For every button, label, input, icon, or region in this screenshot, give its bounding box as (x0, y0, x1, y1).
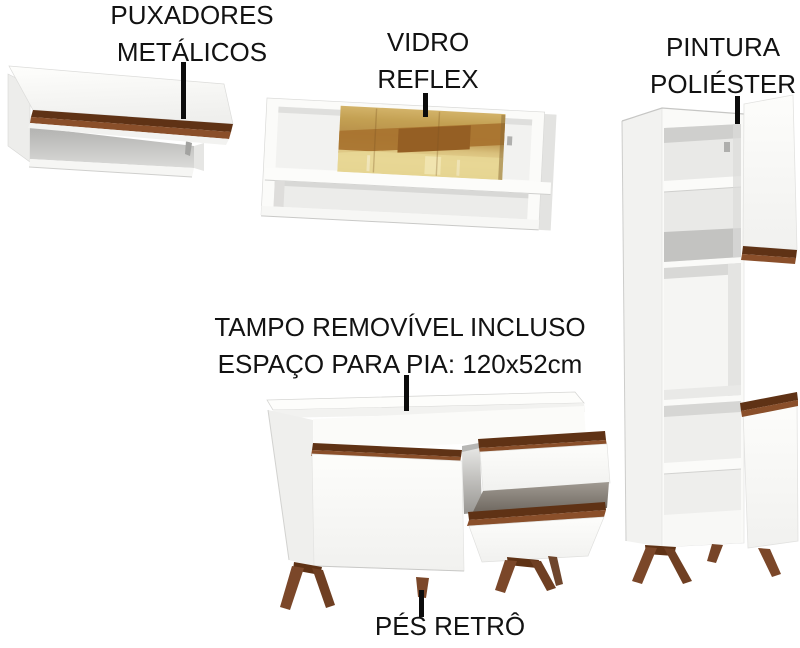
tall-cabinet-upper-door (741, 95, 797, 264)
label-retro-feet: PÉS RETRÔ (340, 608, 560, 645)
wall-cabinet-glass (261, 98, 557, 231)
label-line: REFLEX (328, 61, 528, 98)
label-metal-handles: PUXADORES METÁLICOS (57, 0, 327, 71)
label-line: ESPAÇO PARA PIA: 120x52cm (175, 346, 625, 383)
counter-cabinet (267, 392, 610, 610)
label-line: METÁLICOS (57, 34, 327, 71)
label-line: PUXADORES (57, 0, 327, 34)
reflex-glass-panel (337, 106, 505, 180)
glass-door-hinge (507, 136, 512, 145)
retro-feet-tall-cabinet (632, 544, 781, 584)
label-polyester-paint: PINTURA POLIÉSTER (633, 29, 800, 103)
counter-open-drawer (478, 431, 610, 491)
label-line: PÉS RETRÔ (340, 608, 560, 645)
counter-tilted-drawer (467, 502, 606, 562)
tall-cabinet-lower-door (740, 392, 798, 548)
label-line: TAMPO REMOVÍVEL INCLUSO (175, 309, 625, 346)
counter-left-door (312, 454, 464, 571)
label-reflex-glass: VIDRO REFLEX (328, 24, 528, 98)
label-line: VIDRO (328, 24, 528, 61)
wall-cabinet-flip-door (8, 66, 233, 177)
label-line: PINTURA (633, 29, 800, 66)
label-countertop-sink: TAMPO REMOVÍVEL INCLUSO ESPAÇO PARA PIA:… (175, 309, 625, 383)
shelf-hinge (724, 142, 730, 152)
product-feature-diagram: PUXADORES METÁLICOS VIDRO REFLEX PINTURA… (0, 0, 800, 648)
label-line: POLIÉSTER (633, 66, 800, 103)
tall-cabinet (622, 95, 798, 584)
